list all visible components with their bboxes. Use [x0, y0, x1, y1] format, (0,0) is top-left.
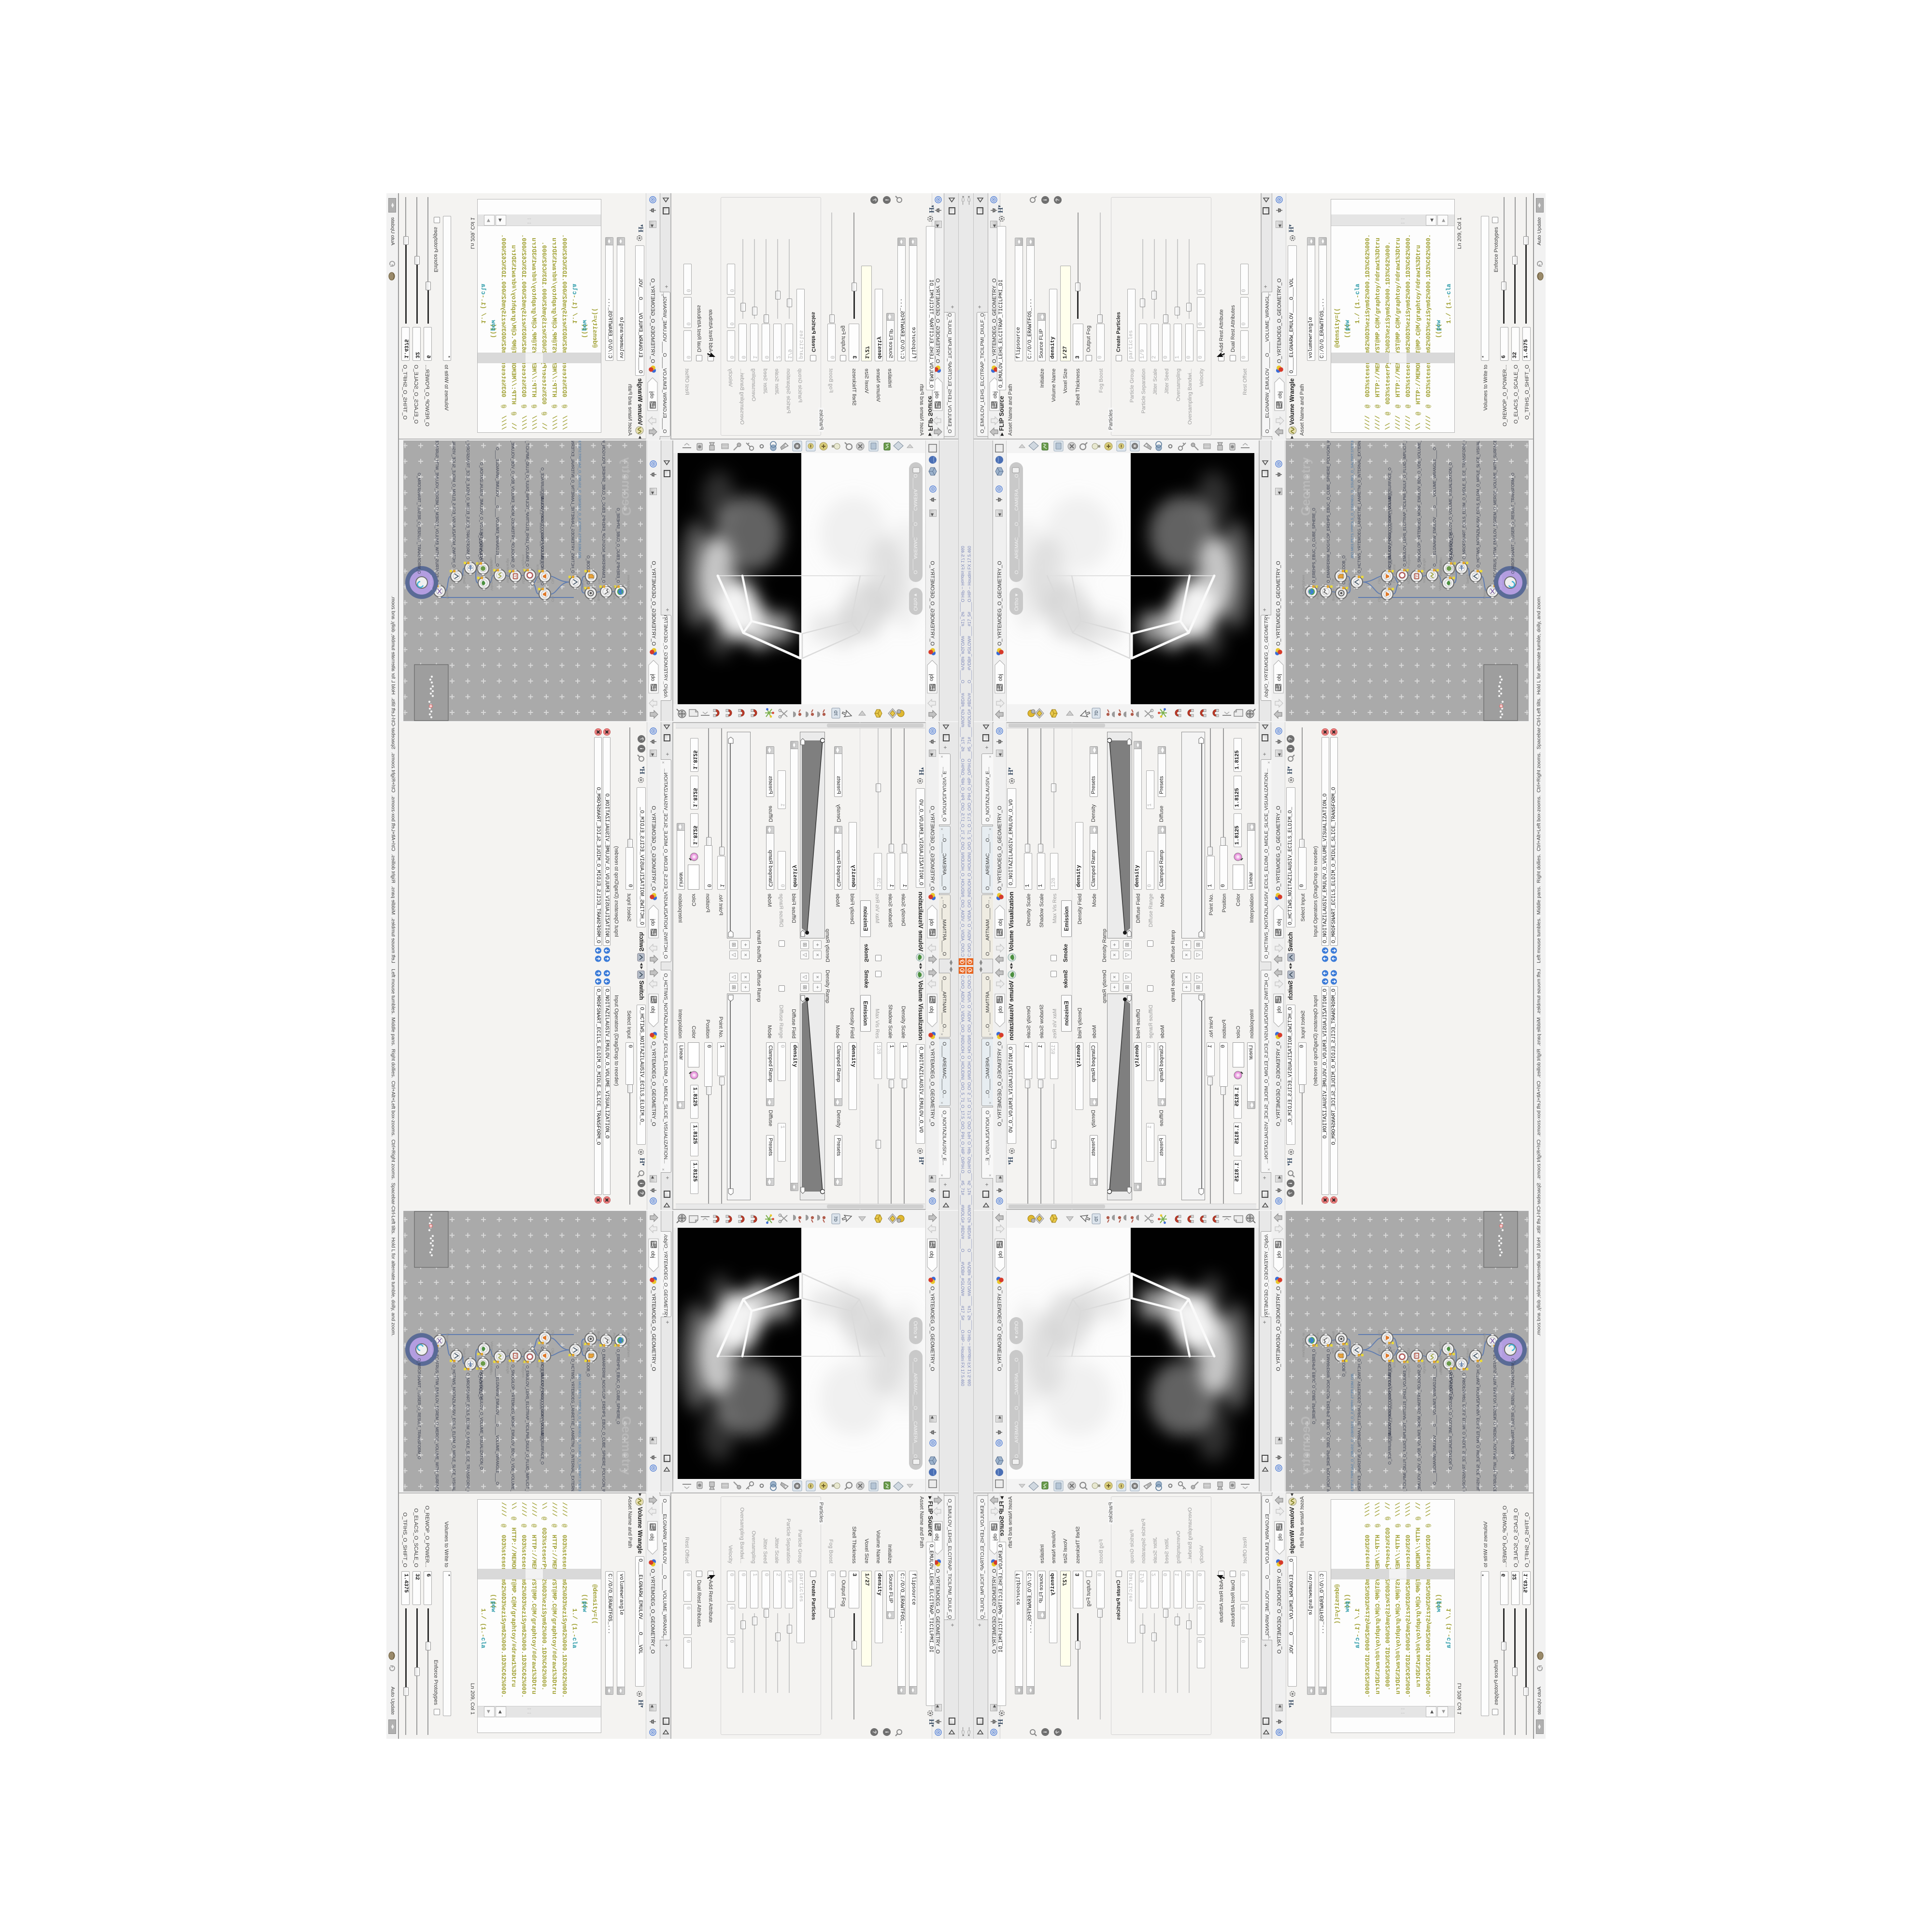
- svg-text:Volume Wrangle: Volume Wrangle: [1423, 558, 1426, 583]
- svg-text:V: V: [1415, 575, 1419, 577]
- svg-text:VDB from Polygons: VDB from Polygons: [1407, 554, 1411, 584]
- svg-text:V: V: [513, 575, 517, 577]
- svg-text:O_HCTIWS_NOITAZILAUSIV_ECILS_E: O_HCTIWS_NOITAZILAUSIV_ECILS_ELDIM_O_MID…: [452, 1364, 456, 1492]
- svg-text:obj: obj: [998, 919, 1004, 926]
- svg-text:O____AREMAC____O____CAMERA____: O____AREMAC____O____CAMERA____O: [1014, 474, 1020, 574]
- svg-text:O_MROFSNART_TLUSER_O_RESULT_TR: O_MROFSNART_TLUSER_O_RESULT_TRANSFORM_O: [417, 1358, 421, 1459]
- svg-text:O_NOITAZIL_O: O_NOITAZIL_O: [1449, 532, 1454, 560]
- svg-text:FLIP Source: FLIP Source: [536, 564, 539, 583]
- svg-text:O_HCTIWS_NOITAZILAUSIV_ECILS_E: O_HCTIWS_NOITAZILAUSIV_ECILS_ELDIM_O_MID…: [1476, 440, 1480, 568]
- svg-text:an_CubeSphere: an_CubeSphere: [1302, 1333, 1306, 1357]
- svg-text:an_CubeSphere: an_CubeSphere: [626, 575, 630, 599]
- svg-text:Visualization: Visualization: [489, 1356, 492, 1375]
- svg-text:Clip: Clip: [1378, 596, 1381, 602]
- svg-text:O_HCTIWS_YRTEMOEG_LANRETXE_LAN: O_HCTIWS_YRTEMOEG_LANRETXE_LANRETNI_O_IN…: [570, 440, 575, 573]
- svg-text:O_NOITAZIL_O: O_NOITAZIL_O: [478, 532, 483, 560]
- svg-text:Transform: Transform: [429, 1342, 432, 1357]
- svg-text:Clip: Clip: [551, 578, 554, 584]
- svg-text:V: V: [513, 1355, 517, 1357]
- svg-text:Transform: Transform: [429, 575, 432, 590]
- svg-text:PolyWire: PolyWire: [1317, 1333, 1320, 1346]
- svg-text:Boolean: Boolean: [1332, 1331, 1335, 1344]
- svg-text:O_HCTIWS_YRTEMOEG_LANRETXE_LAN: O_HCTIWS_YRTEMOEG_LANRETXE_LANRETNI_O_IN…: [570, 1359, 575, 1492]
- svg-text:File: File: [597, 1348, 600, 1353]
- svg-text:Switch: Switch: [462, 1348, 466, 1358]
- svg-text:O_MROFSNART_TLUSER_O_RESULT_TR: O_MROFSNART_TLUSER_O_RESULT_TRANSFORM_O: [417, 473, 421, 574]
- svg-text:Ortho ▾: Ortho ▾: [1014, 1321, 1020, 1339]
- svg-text:O_HCTIWS_NOITAZILAUSIV_ECILS_E: O_HCTIWS_NOITAZILAUSIV_ECILS_ELDIM_O_MID…: [452, 440, 456, 568]
- svg-text:O____ELGNARW_EMULOV____O____VO: O____ELGNARW_EMULOV____O____VOLUME_WRANG…: [1433, 447, 1437, 567]
- svg-text:O____ELGNARW_EMULOV____O____VO: O____ELGNARW_EMULOV____O____VOLUME_WRANG…: [495, 447, 499, 567]
- svg-text:Geometry: Geometry: [1298, 457, 1313, 516]
- svg-text:O____AREMAC____O____CAMERA____: O____AREMAC____O____CAMERA____O: [912, 474, 918, 574]
- svg-text:JBO.M03.PETS.YPPOLS_O_SISENEG_: JBO.M03.PETS.YPPOLS_O_SISENEG_O_SSURG_O_…: [1350, 440, 1354, 559]
- svg-text:O_SNOGILOP_YRTEMOEG_MORF_EMULO: O_SNOGILOP_YRTEMOEG_MORF_EMULOV_BDV_O_VD…: [1417, 440, 1421, 568]
- svg-text:obj: obj: [650, 1006, 656, 1013]
- svg-text:obj: obj: [993, 391, 998, 398]
- svg-text:O_EMULOV_PORD_O_DROP_VOLUME_O: O_EMULOV_PORD_O_DROP_VOLUME_O: [1388, 1364, 1392, 1441]
- svg-text:O_HCTIWS_NOITAZILAUSIV_ECILS_E: O_HCTIWS_NOITAZILAUSIV_ECILS_ELDIM_O_MID…: [1476, 1364, 1480, 1492]
- svg-text:Volume Wrangle: Volume Wrangle: [506, 558, 509, 583]
- svg-text:O_MROFSNART_ECILS_ELDIM_O_MIDL: O_MROFSNART_ECILS_ELDIM_O_MIDLE_SLICE_TR…: [1462, 1373, 1466, 1492]
- svg-text:obj: obj: [1277, 1006, 1282, 1013]
- svg-text:O_MROFSNART_ECILS_ELDIM_O_MIDL: O_MROFSNART_ECILS_ELDIM_O_MIDLE_SLICE_TR…: [1462, 440, 1466, 559]
- svg-text:File: File: [1332, 1348, 1335, 1353]
- svg-text:Transform: Transform: [1500, 575, 1503, 590]
- svg-text:Ortho ▾: Ortho ▾: [912, 1321, 918, 1339]
- svg-text:obj: obj: [929, 1006, 935, 1013]
- svg-text:obj: obj: [649, 1534, 655, 1541]
- svg-text:Switch: Switch: [581, 580, 584, 590]
- svg-text:obj: obj: [1278, 391, 1283, 398]
- svg-text:Clip: Clip: [551, 596, 554, 602]
- svg-text:obj: obj: [650, 674, 656, 681]
- svg-text:Switch: Switch: [1466, 574, 1470, 584]
- svg-text:File: File: [597, 579, 600, 584]
- svg-text:O_MROFSNART_TLUSER_O_RESULT_TR: O_MROFSNART_TLUSER_O_RESULT_TRANSFORM_O: [1511, 1358, 1515, 1459]
- svg-text:O____AREMAC____O____CAMERA____: O____AREMAC____O____CAMERA____O: [1014, 1358, 1020, 1458]
- svg-text:O_NOITAZIL_O: O_NOITAZIL_O: [1449, 1372, 1454, 1400]
- svg-text:O_EREHPS_EBUC_O_CUBE_SPHERE_O: O_EREHPS_EBUC_O_CUBE_SPHERE_O: [616, 508, 620, 583]
- svg-text:O_MROFSNART_ECILS_ELDIM_O_MIDL: O_MROFSNART_ECILS_ELDIM_O_MIDLE_SLICE_TR…: [466, 1373, 470, 1492]
- svg-text:obj: obj: [934, 391, 940, 398]
- svg-text:O____AREMAC____O____CAMERA____: O____AREMAC____O____CAMERA____O: [912, 1358, 918, 1458]
- svg-text:Boolean: Boolean: [597, 1331, 600, 1344]
- svg-text:O_EMARFERIW_NOGYLOP_EREHPS_EBU: O_EMARFERIW_NOGYLOP_EREHPS_EBUC_O_CUBE_S…: [1326, 440, 1331, 583]
- svg-text:FLIP Source: FLIP Source: [1393, 564, 1396, 583]
- svg-text:Switch: Switch: [1466, 1348, 1470, 1358]
- svg-text:Switch: Switch: [581, 1342, 584, 1352]
- svg-text:O_EREHPS_EBUC_O_CUBE_SPHERE_O: O_EREHPS_EBUC_O_CUBE_SPHERE_O: [1312, 1349, 1316, 1424]
- svg-text:Volume Wrangle: Volume Wrangle: [1423, 1349, 1426, 1374]
- svg-text:Transform: Transform: [1500, 1342, 1503, 1357]
- svg-text:Clip: Clip: [1378, 1330, 1381, 1336]
- svg-text:O_EREHPS_EBUC_O_CUBE_SPHERE_O: O_EREHPS_EBUC_O_CUBE_SPHERE_O: [616, 1349, 620, 1424]
- svg-text:JBO.M03.PETS.YPPOLS_O_SISENEG_: JBO.M03.PETS.YPPOLS_O_SISENEG_O_SSURG_O_…: [578, 1373, 582, 1492]
- svg-text:obj: obj: [1277, 674, 1282, 681]
- svg-text:O_HCTIWS_YRTEMOEG_LANRETXE_LAN: O_HCTIWS_YRTEMOEG_LANRETXE_LANRETNI_O_IN…: [1357, 1359, 1362, 1492]
- svg-text:Clip: Clip: [551, 1348, 554, 1354]
- svg-text:File: File: [1332, 579, 1335, 584]
- svg-text:Clip: Clip: [1378, 1348, 1381, 1354]
- svg-text:O_SNOGILOP_YRTEMOEG_MORF_EMULO: O_SNOGILOP_YRTEMOEG_MORF_EMULOV_BDV_O_VD…: [1417, 1364, 1421, 1492]
- svg-text:obj: obj: [998, 674, 1004, 681]
- svg-text:O_EMARFERIW_NOGYLOP_EREHPS_EBU: O_EMARFERIW_NOGYLOP_EREHPS_EBUC_O_CUBE_S…: [601, 440, 606, 583]
- svg-text:Switch: Switch: [1348, 1342, 1351, 1352]
- svg-text:FLIP Source: FLIP Source: [1393, 1349, 1396, 1368]
- svg-text:O_EMULOV_LEHS_ELCITRAP_TICILPM: O_EMULOV_LEHS_ELCITRAP_TICILPMI_DIULF_O_…: [1403, 440, 1407, 567]
- svg-text:O_EMULOV_PORD_O_DROP_VOLUME_O: O_EMULOV_PORD_O_DROP_VOLUME_O: [540, 1364, 544, 1441]
- svg-text:Clip: Clip: [1378, 578, 1381, 584]
- svg-text:O_EMULOV_LEHS_ELCITRAP_TICILPM: O_EMULOV_LEHS_ELCITRAP_TICILPMI_DIULF_O_…: [525, 1365, 529, 1492]
- svg-text:7D: 7D: [833, 710, 838, 716]
- svg-text:O____ELGNARW_EMULOV____O____VO: O____ELGNARW_EMULOV____O____VOLUME_WRANG…: [1433, 1365, 1437, 1485]
- svg-text:O_ECAFRUS_HTIW_EMULOV_EGREM_O_: O_ECAFRUS_HTIW_EMULOV_EGREM_O_MERGE_VOLU…: [1493, 440, 1497, 582]
- svg-text:Ortho ▾: Ortho ▾: [1014, 593, 1020, 611]
- svg-text:V: V: [1415, 1355, 1419, 1357]
- svg-text:O_EMULOV_LEHS_ELCITRAP_TICILPM: O_EMULOV_LEHS_ELCITRAP_TICILPMI_DIULF_O_…: [525, 440, 529, 567]
- svg-text:Boolean: Boolean: [597, 588, 600, 601]
- svg-text:obj: obj: [929, 674, 935, 681]
- svg-text:an_CubeSphere: an_CubeSphere: [626, 1333, 630, 1357]
- svg-text:JBO.M03.PETS.YPPOLS_O_SISENEG_: JBO.M03.PETS.YPPOLS_O_SISENEG_O_SSURG_O_…: [1350, 1373, 1354, 1492]
- svg-text:PolyWire: PolyWire: [612, 586, 615, 599]
- svg-text:obj: obj: [929, 1251, 935, 1258]
- svg-text:O_ECAFRUS_HTIW_EMULOV_EGREM_O_: O_ECAFRUS_HTIW_EMULOV_EGREM_O_MERGE_VOLU…: [435, 440, 439, 582]
- svg-text:Volume Wrangle: Volume Wrangle: [506, 1349, 509, 1374]
- svg-text:O_HCTIWS_YRTEMOEG_LANRETXE_LAN: O_HCTIWS_YRTEMOEG_LANRETXE_LANRETNI_O_IN…: [1357, 440, 1362, 573]
- svg-text:O_MROFSNART_ECILS_ELDIM_O_MIDL: O_MROFSNART_ECILS_ELDIM_O_MIDLE_SLICE_TR…: [466, 440, 470, 559]
- svg-text:an_CubeSphere: an_CubeSphere: [1302, 575, 1306, 599]
- svg-text:obj: obj: [998, 1006, 1004, 1013]
- svg-text:O_ECAFRUS_HTIW_EMULOV_EGREM_O_: O_ECAFRUS_HTIW_EMULOV_EGREM_O_MERGE_VOLU…: [1493, 1350, 1497, 1492]
- svg-text:O_ECAFRUS_HTIW_EMULOV_EGREM_O_: O_ECAFRUS_HTIW_EMULOV_EGREM_O_MERGE_VOLU…: [435, 1350, 439, 1492]
- svg-text:O_EMULOV_PORD_O_DROP_VOLUME_O: O_EMULOV_PORD_O_DROP_VOLUME_O: [1388, 491, 1392, 568]
- svg-text:obj: obj: [934, 1534, 940, 1541]
- svg-text:O_EMULOV_LEHS_ELCITRAP_TICILPM: O_EMULOV_LEHS_ELCITRAP_TICILPMI_DIULF_O_…: [1403, 1365, 1407, 1492]
- svg-text:obj: obj: [1278, 1534, 1283, 1541]
- svg-text:Geometry: Geometry: [619, 1416, 634, 1475]
- svg-text:FLIP Source: FLIP Source: [536, 1349, 539, 1368]
- svg-text:JBO.M03.PETS.YPPOLS_O_SISENEG_: JBO.M03.PETS.YPPOLS_O_SISENEG_O_SSURG_O_…: [578, 440, 582, 559]
- svg-text:O_SNOGILOP_YRTEMOEG_MORF_EMULO: O_SNOGILOP_YRTEMOEG_MORF_EMULOV_BDV_O_VD…: [511, 1364, 515, 1492]
- svg-text:Geometry: Geometry: [619, 457, 634, 516]
- svg-text:O_NOITAZIL_O: O_NOITAZIL_O: [478, 1372, 483, 1400]
- svg-text:VDB from Polygons: VDB from Polygons: [521, 1348, 525, 1378]
- svg-text:Clip: Clip: [551, 1330, 554, 1336]
- svg-text:obj: obj: [993, 1534, 998, 1541]
- svg-text:obj: obj: [650, 1251, 656, 1258]
- svg-text:Visualization: Visualization: [1440, 1356, 1443, 1375]
- svg-text:Visualization: Visualization: [1440, 557, 1443, 576]
- svg-text:Switch: Switch: [1348, 580, 1351, 590]
- svg-text:obj: obj: [998, 1251, 1004, 1258]
- svg-text:PolyWire: PolyWire: [1317, 586, 1320, 599]
- svg-text:obj: obj: [929, 919, 935, 926]
- svg-text:O_MROFSNART_TLUSER_O_RESULT_TR: O_MROFSNART_TLUSER_O_RESULT_TRANSFORM_O: [1511, 473, 1515, 574]
- svg-text:obj: obj: [1277, 1251, 1282, 1258]
- svg-text:VDB from Polygons: VDB from Polygons: [521, 554, 525, 584]
- svg-text:O_EMARFERIW_NOGYLOP_EREHPS_EBU: O_EMARFERIW_NOGYLOP_EREHPS_EBUC_O_CUBE_S…: [601, 1349, 606, 1492]
- svg-text:Ortho ▾: Ortho ▾: [912, 593, 918, 611]
- svg-text:O_EMULOV_PORD_O_DROP_VOLUME_O: O_EMULOV_PORD_O_DROP_VOLUME_O: [540, 491, 544, 568]
- svg-text:O____ELGNARW_EMULOV____O____VO: O____ELGNARW_EMULOV____O____VOLUME_WRANG…: [495, 1365, 499, 1485]
- svg-text:O_EMARFERIW_NOGYLOP_EREHPS_EBU: O_EMARFERIW_NOGYLOP_EREHPS_EBUC_O_CUBE_S…: [1326, 1349, 1331, 1492]
- svg-text:7D: 7D: [1094, 710, 1099, 716]
- svg-text:7D: 7D: [1094, 1216, 1099, 1222]
- svg-text:O_SNOGILOP_YRTEMOEG_MORF_EMULO: O_SNOGILOP_YRTEMOEG_MORF_EMULOV_BDV_O_VD…: [511, 440, 515, 568]
- svg-text:Geometry: Geometry: [1298, 1416, 1313, 1475]
- svg-text:obj: obj: [649, 391, 655, 398]
- svg-text:obj: obj: [650, 919, 656, 926]
- svg-text:Switch: Switch: [462, 574, 466, 584]
- svg-text:O_EREHPS_EBUC_O_CUBE_SPHERE_O: O_EREHPS_EBUC_O_CUBE_SPHERE_O: [1312, 508, 1316, 583]
- svg-text:Boolean: Boolean: [1332, 588, 1335, 601]
- svg-text:obj: obj: [1277, 919, 1282, 926]
- svg-text:7D: 7D: [833, 1216, 838, 1222]
- svg-text:PolyWire: PolyWire: [612, 1333, 615, 1346]
- svg-text:Visualization: Visualization: [489, 557, 492, 576]
- svg-text:VDB from Polygons: VDB from Polygons: [1407, 1348, 1411, 1378]
